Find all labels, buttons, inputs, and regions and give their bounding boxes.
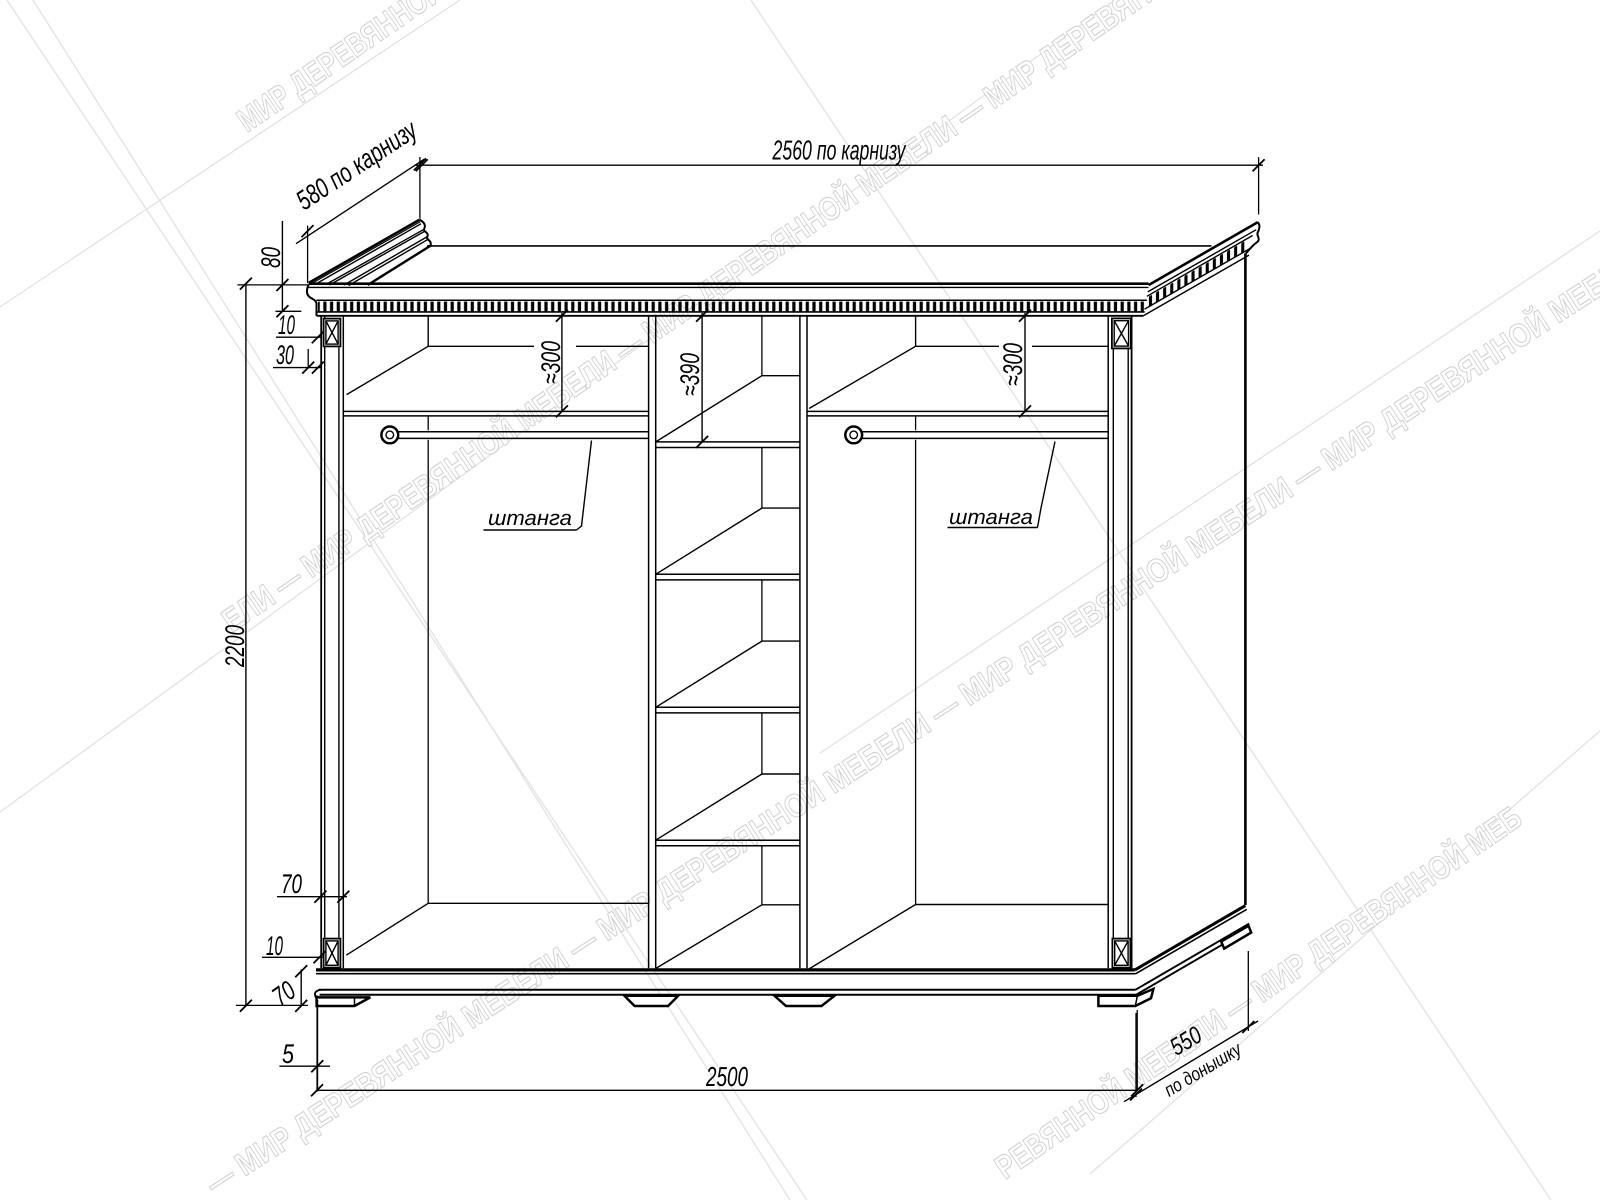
- svg-text:30: 30: [276, 340, 294, 370]
- svg-text:10: 10: [266, 931, 283, 961]
- svg-text:≈390: ≈390: [675, 353, 705, 396]
- svg-text:2560 по карнизу: 2560 по карнизу: [772, 134, 907, 165]
- svg-text:5: 5: [282, 1039, 295, 1069]
- svg-text:2500: 2500: [705, 1061, 748, 1092]
- svg-text:штанга: штанга: [949, 506, 1033, 529]
- svg-text:≈300: ≈300: [536, 341, 566, 384]
- svg-text:80: 80: [256, 247, 286, 268]
- svg-text:10: 10: [278, 310, 295, 340]
- svg-text:штанга: штанга: [488, 507, 572, 530]
- svg-text:≈300: ≈300: [998, 343, 1028, 386]
- svg-text:70: 70: [281, 869, 302, 899]
- svg-text:2200: 2200: [220, 625, 250, 668]
